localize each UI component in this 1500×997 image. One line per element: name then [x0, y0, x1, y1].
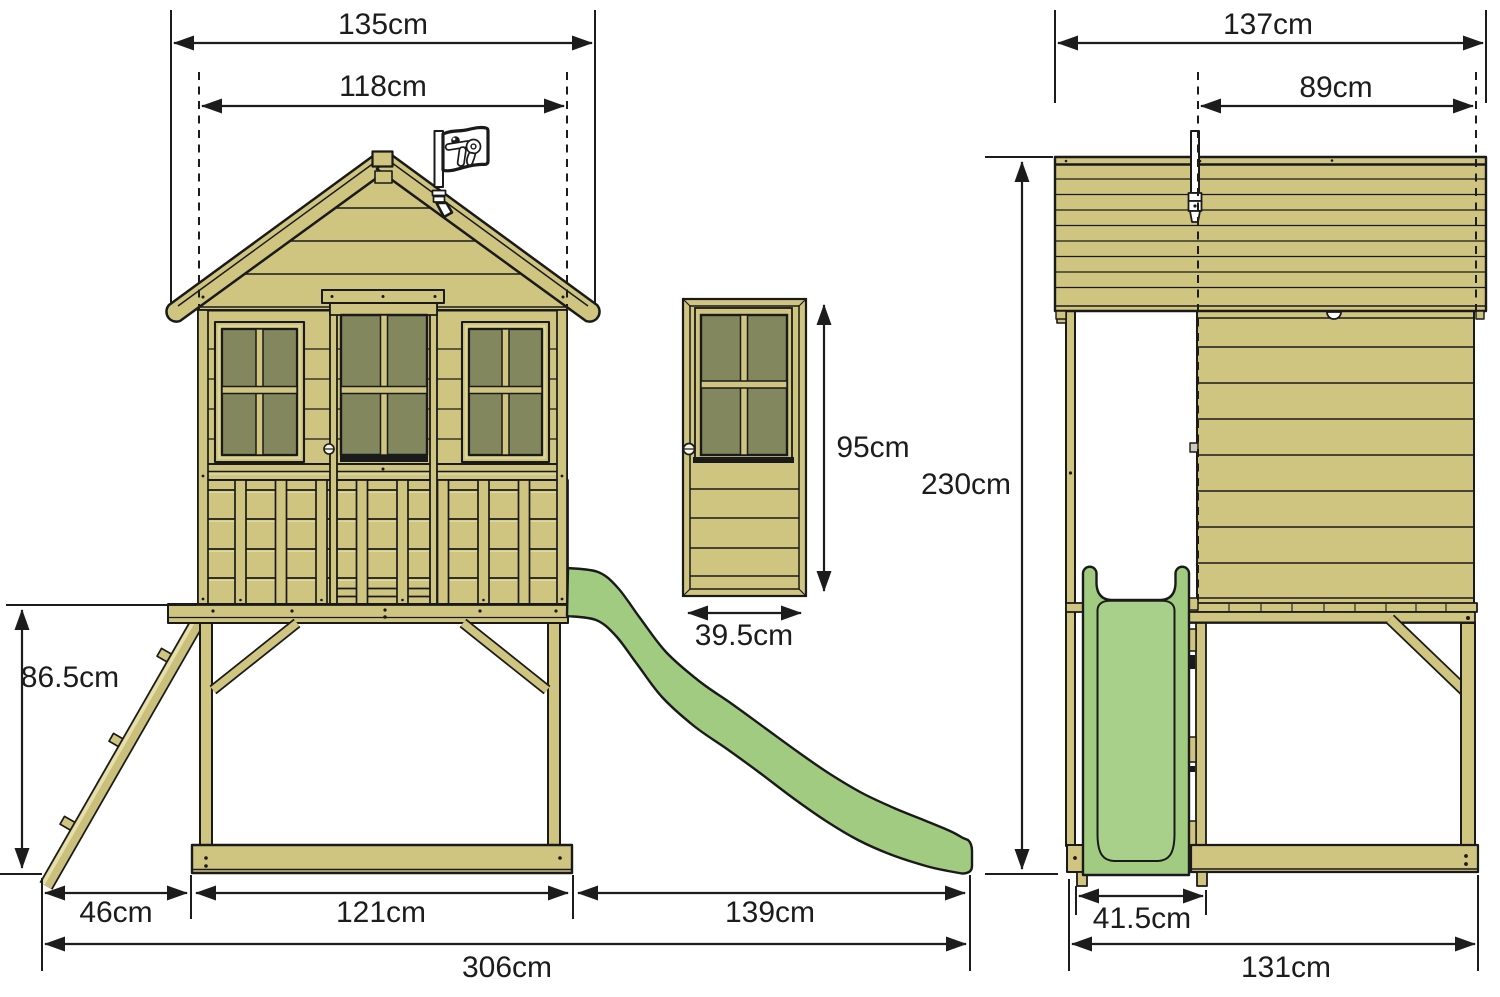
svg-text:306cm: 306cm [462, 951, 552, 984]
svg-text:39.5cm: 39.5cm [695, 619, 793, 652]
svg-text:86.5cm: 86.5cm [21, 661, 119, 694]
svg-text:121cm: 121cm [336, 896, 426, 929]
svg-text:230cm: 230cm [921, 468, 1011, 501]
svg-text:95cm: 95cm [836, 431, 909, 464]
svg-text:118cm: 118cm [339, 70, 427, 103]
svg-text:41.5cm: 41.5cm [1093, 902, 1191, 935]
svg-text:135cm: 135cm [338, 8, 428, 41]
svg-text:89cm: 89cm [1299, 71, 1372, 104]
svg-text:139cm: 139cm [725, 896, 815, 929]
svg-text:46cm: 46cm [79, 896, 152, 929]
svg-text:131cm: 131cm [1241, 951, 1331, 984]
svg-text:137cm: 137cm [1223, 8, 1313, 41]
